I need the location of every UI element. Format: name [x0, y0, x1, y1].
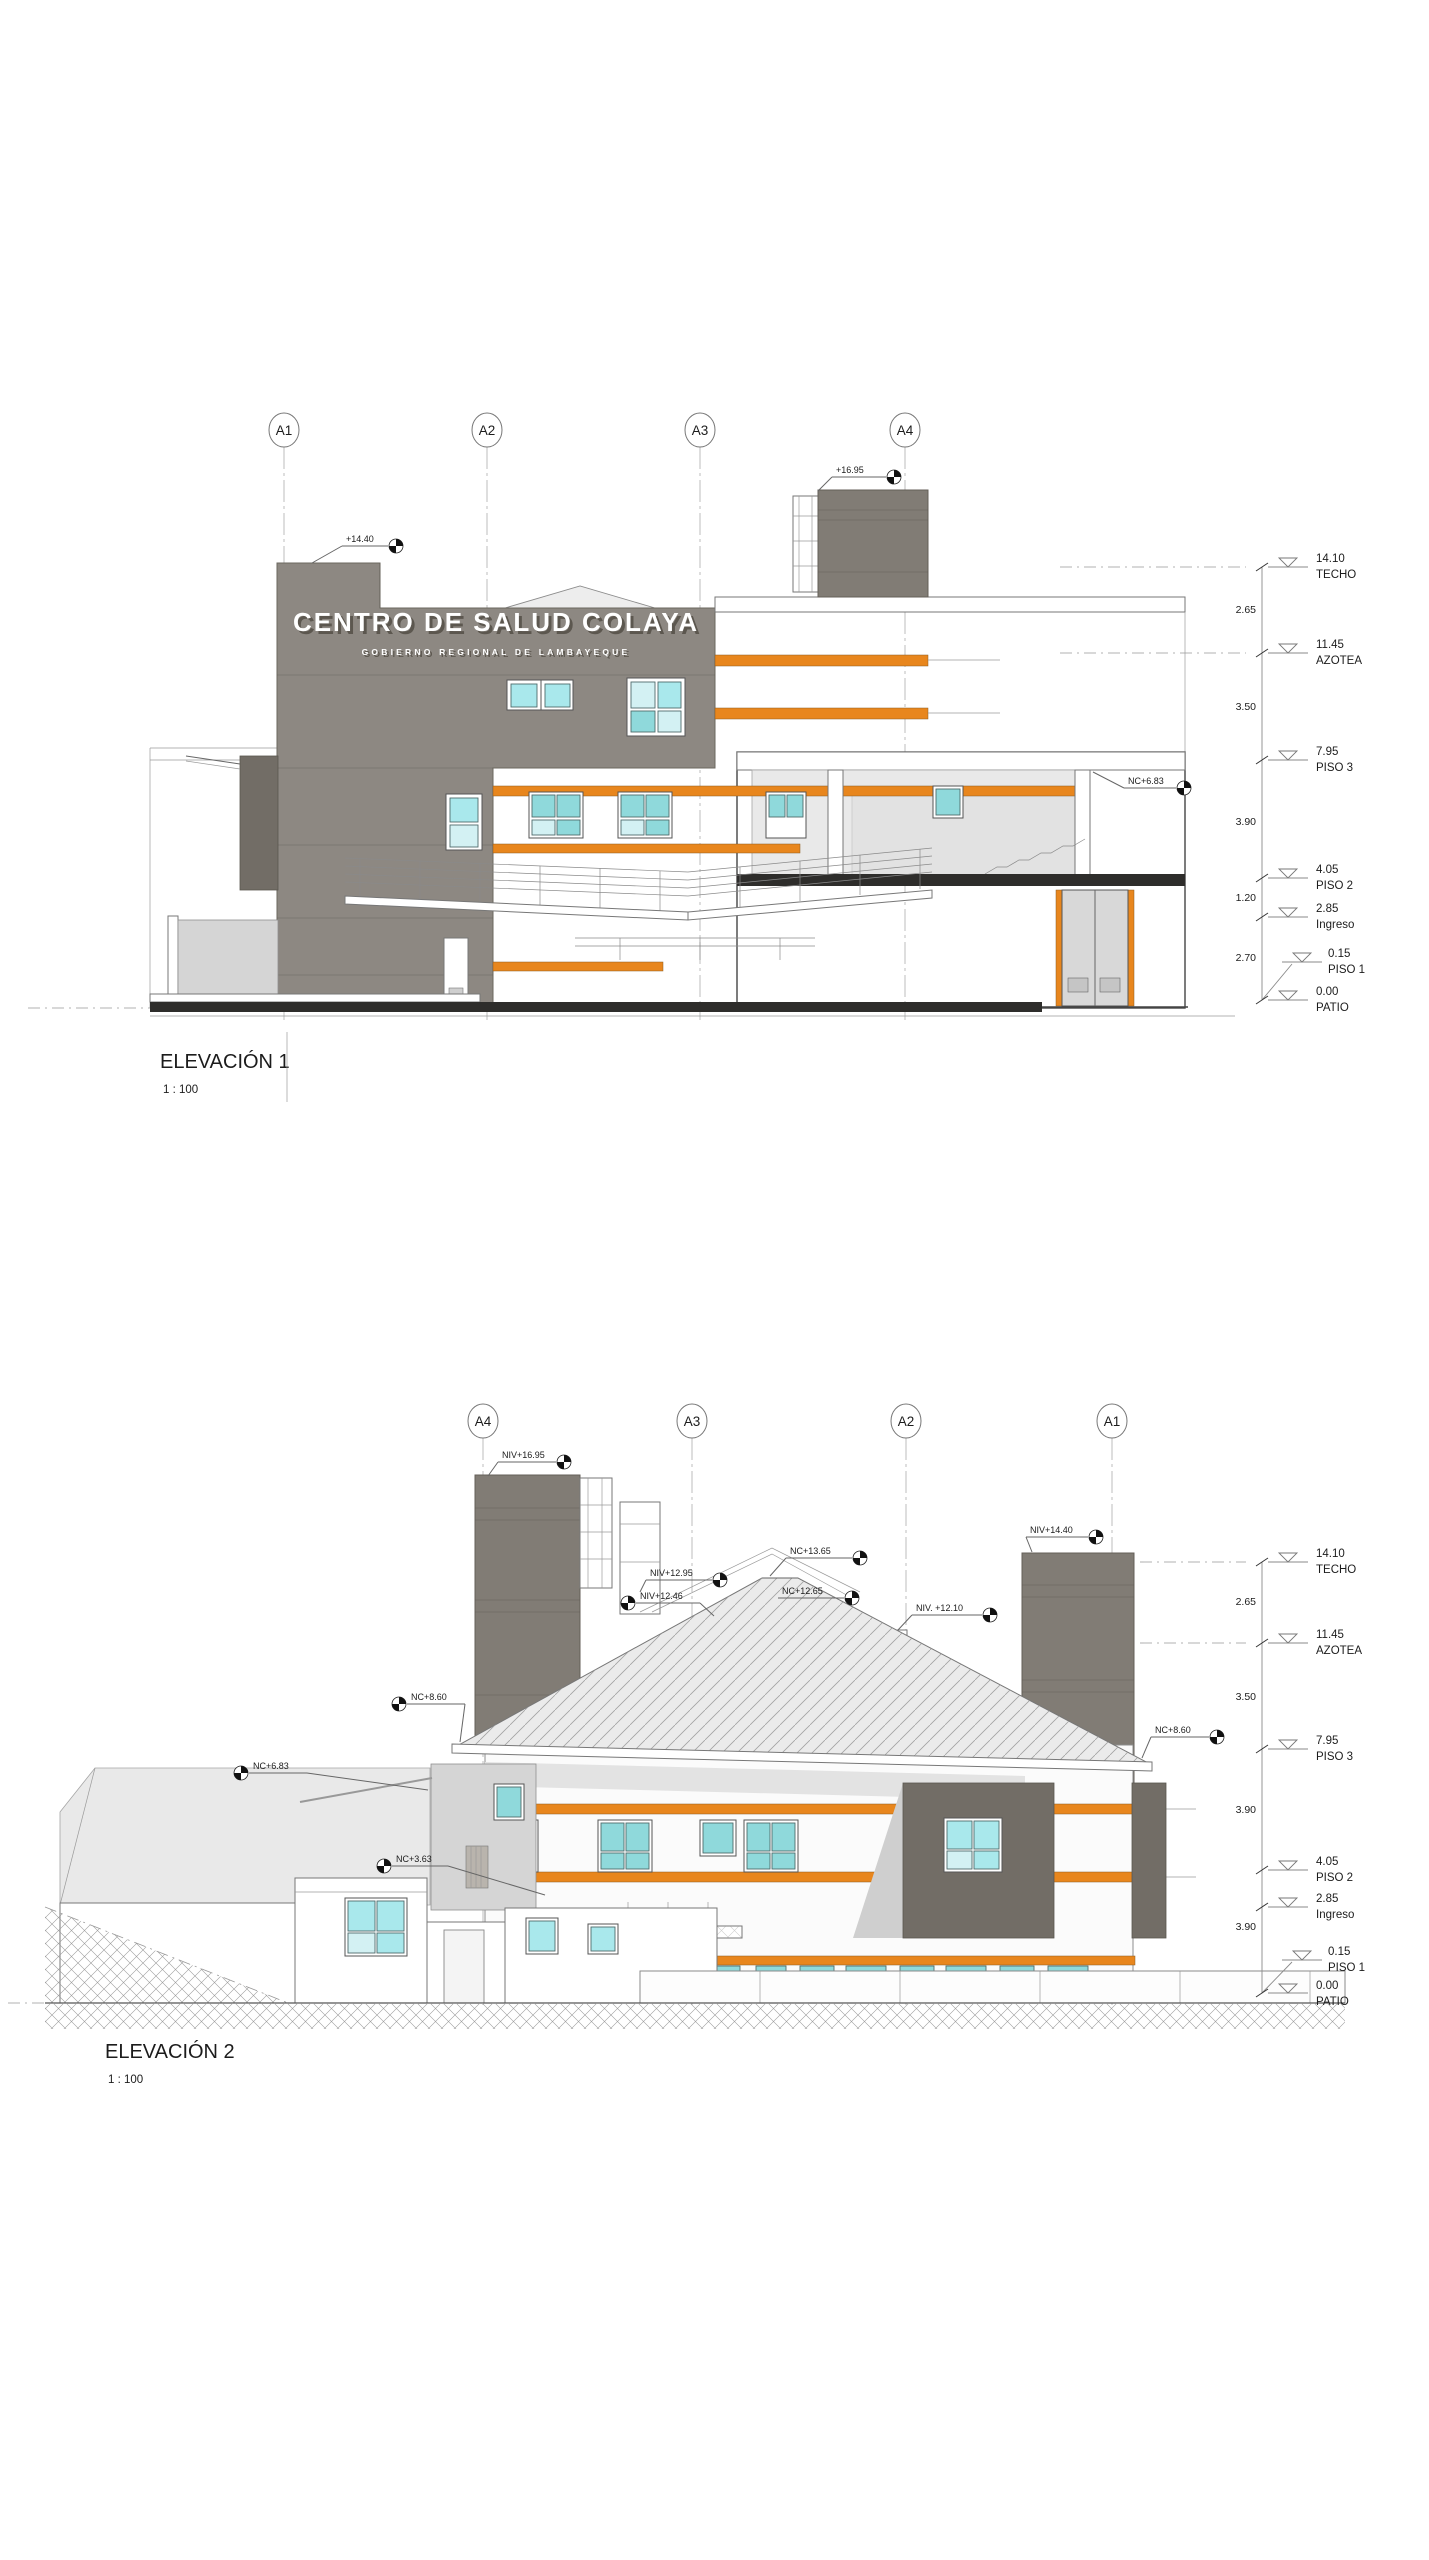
spot-level-label: NC+8.60 [411, 1692, 447, 1702]
spot-level-label: NIV. +12.10 [916, 1603, 963, 1613]
level-name: PISO 3 [1316, 762, 1353, 774]
level-name: Ingreso [1316, 1909, 1354, 1921]
spot-level-label: +16.95 [836, 465, 864, 475]
ladder-cage [580, 1478, 612, 1588]
grid-label: A4 [475, 1414, 492, 1429]
grid-label: A4 [897, 423, 914, 438]
grid-label: A2 [479, 423, 496, 438]
level-value: 14.10 [1316, 553, 1345, 565]
level-name: TECHO [1316, 569, 1356, 581]
grid-label: A3 [684, 1414, 701, 1429]
level-value: 0.15 [1328, 1946, 1350, 1958]
dim-label: 3.90 [1236, 1804, 1257, 1816]
elev1-grid-bubbles: A1 A2 A3 A4 [269, 413, 920, 447]
orange-louver-band [493, 962, 663, 971]
level-name: PISO 1 [1328, 964, 1365, 976]
level-name: AZOTEA [1316, 1645, 1362, 1657]
door-jamb [1128, 890, 1134, 1006]
stair-tower [818, 490, 928, 597]
level-name: AZOTEA [1316, 655, 1362, 667]
level-value: 2.85 [1316, 1893, 1338, 1905]
view-scale: 1 : 100 [108, 2074, 143, 2086]
level-value: 7.95 [1316, 1735, 1338, 1747]
view-title: ELEVACIÓN 1 [160, 1050, 290, 1073]
spot-level-label: NC+6.83 [253, 1761, 289, 1771]
dim-label: 3.50 [1236, 1691, 1257, 1703]
level-name: PATIO [1316, 1996, 1349, 2008]
level-value: 0.00 [1316, 1980, 1338, 1992]
base-slab [150, 1002, 1042, 1012]
level-value: 14.10 [1316, 1548, 1345, 1560]
level-value: 0.00 [1316, 986, 1338, 998]
grid-label: A2 [898, 1414, 915, 1429]
spot-level-label: NC+12.65 [782, 1586, 823, 1596]
level-name: TECHO [1316, 1564, 1356, 1576]
dim-label: 3.50 [1236, 701, 1257, 713]
level-value: 4.05 [1316, 1856, 1338, 1868]
drawing-sheet: CENTRO DE SALUD COLAYA CENTRO DE SALUD C… [0, 0, 1429, 2560]
spot-level-label: NC+8.60 [1155, 1725, 1191, 1735]
dim-label: 3.90 [1236, 816, 1257, 828]
dim-label: 2.65 [1236, 604, 1257, 616]
level-value: 11.45 [1316, 1629, 1344, 1641]
door-jamb [1056, 890, 1062, 1006]
level-value: 7.95 [1316, 746, 1338, 758]
dim-label: 3.90 [1236, 1921, 1257, 1933]
grid-label: A1 [1104, 1414, 1121, 1429]
view-title: ELEVACIÓN 2 [105, 2040, 235, 2063]
orange-louver-band [493, 844, 800, 853]
dim-label: 2.70 [1236, 952, 1257, 964]
elev1-title-block: ELEVACIÓN 1 1 : 100 [160, 1032, 290, 1102]
elev2-grid-bubbles: A4 A3 A2 A1 [468, 1404, 1127, 1438]
spot-level-label: NIV+12.95 [650, 1568, 693, 1578]
level-value: 2.85 [1316, 903, 1338, 915]
spot-level-label: NIV+14.40 [1030, 1525, 1073, 1535]
dim-label: 2.65 [1236, 1596, 1257, 1608]
spot-level-label: NIV+12.46 [640, 1591, 683, 1601]
side-panel [240, 756, 278, 890]
door [444, 1930, 484, 2003]
level-name: PISO 2 [1316, 1872, 1353, 1884]
level-name: PISO 2 [1316, 880, 1353, 892]
ground-hatch [45, 2003, 1345, 2029]
spot-level-label: NC+13.65 [790, 1546, 831, 1556]
grid-label: A1 [276, 423, 293, 438]
slat-vent [466, 1846, 488, 1888]
spot-level-label: NIV+16.95 [502, 1450, 545, 1460]
grid-label: A3 [692, 423, 709, 438]
spot-level-label: NC+3.63 [396, 1854, 432, 1864]
level-value: 0.15 [1328, 948, 1350, 960]
orange-louver-band [715, 655, 928, 666]
elev2-title-block: ELEVACIÓN 2 1 : 100 [105, 2040, 235, 2086]
ladder-cage [793, 496, 819, 592]
elevation-2-view: A4 A3 A2 A1 NIV+16.95 NIV+12.95 NIV+12.4… [8, 1404, 1365, 2086]
level-value: 11.45 [1316, 639, 1344, 651]
elev2-level-markers: 14.10 TECHO 11.45 AZOTEA 7.95 PISO 3 4.0… [1140, 1548, 1365, 2008]
facade-panel [1132, 1783, 1166, 1938]
perimeter-wall [640, 1971, 1345, 2003]
level-value: 4.05 [1316, 864, 1338, 876]
sign-line2: GOBIERNO REGIONAL DE LAMBAYEQUE [362, 647, 631, 657]
level-name: Ingreso [1316, 919, 1354, 931]
curb [150, 994, 480, 1002]
parapet-band [715, 597, 1185, 612]
spot-level-label: +14.40 [346, 534, 374, 544]
level-name: PATIO [1316, 1002, 1349, 1014]
dim-label: 1.20 [1236, 892, 1257, 904]
floor-slab-cut [737, 874, 1185, 886]
view-scale: 1 : 100 [163, 1084, 198, 1096]
level-name: PISO 3 [1316, 1751, 1353, 1763]
gable-peak [505, 586, 655, 608]
spot-level-label: NC+6.83 [1128, 776, 1164, 786]
orange-louver-band [715, 708, 928, 719]
elevation-drawing-canvas: CENTRO DE SALUD COLAYA CENTRO DE SALUD C… [0, 0, 1429, 2560]
level-name: PISO 1 [1328, 1962, 1365, 1974]
sign-line1: CENTRO DE SALUD COLAYA [293, 607, 699, 637]
elevation-1-view: CENTRO DE SALUD COLAYA CENTRO DE SALUD C… [28, 413, 1365, 1102]
